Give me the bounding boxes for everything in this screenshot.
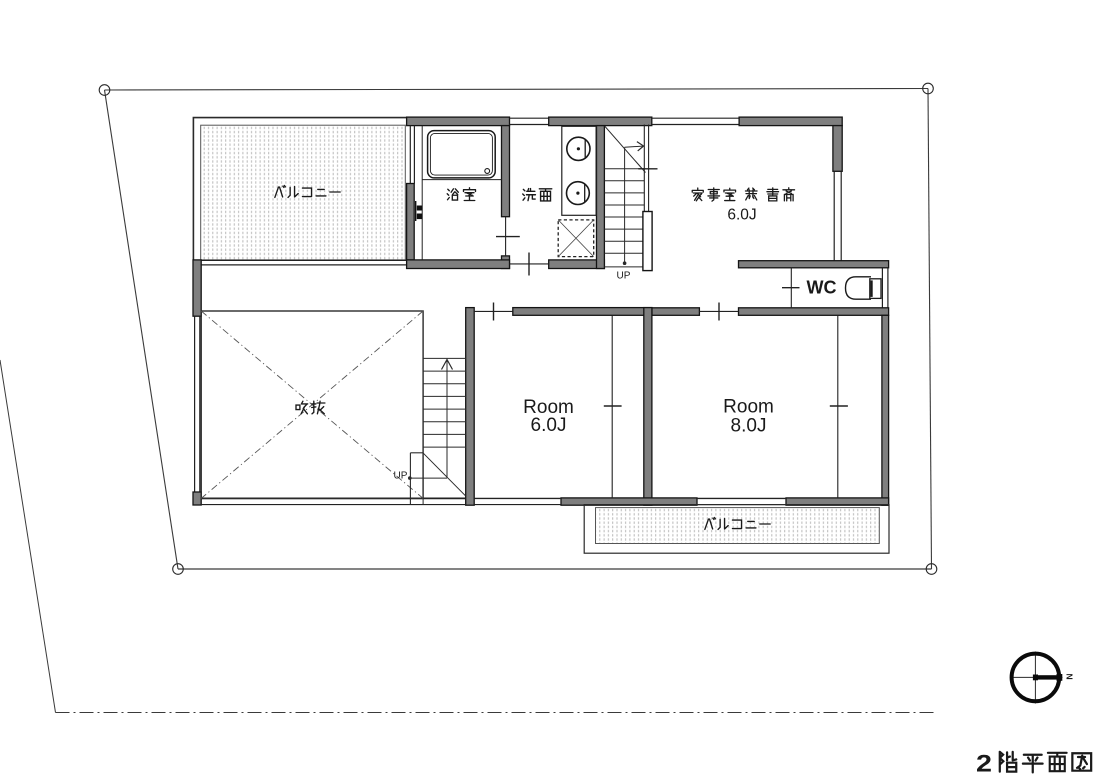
svg-text:N: N	[1065, 674, 1075, 680]
svg-text:8.0J: 8.0J	[731, 416, 767, 437]
svg-text:UP: UP	[394, 471, 408, 482]
svg-text:6.0J: 6.0J	[531, 415, 567, 436]
svg-text:2: 2	[976, 751, 992, 778]
svg-text:UP: UP	[617, 271, 631, 282]
svg-text:Room: Room	[723, 397, 774, 418]
svg-text:WC: WC	[807, 278, 837, 298]
svg-text:6.0J: 6.0J	[727, 207, 756, 224]
